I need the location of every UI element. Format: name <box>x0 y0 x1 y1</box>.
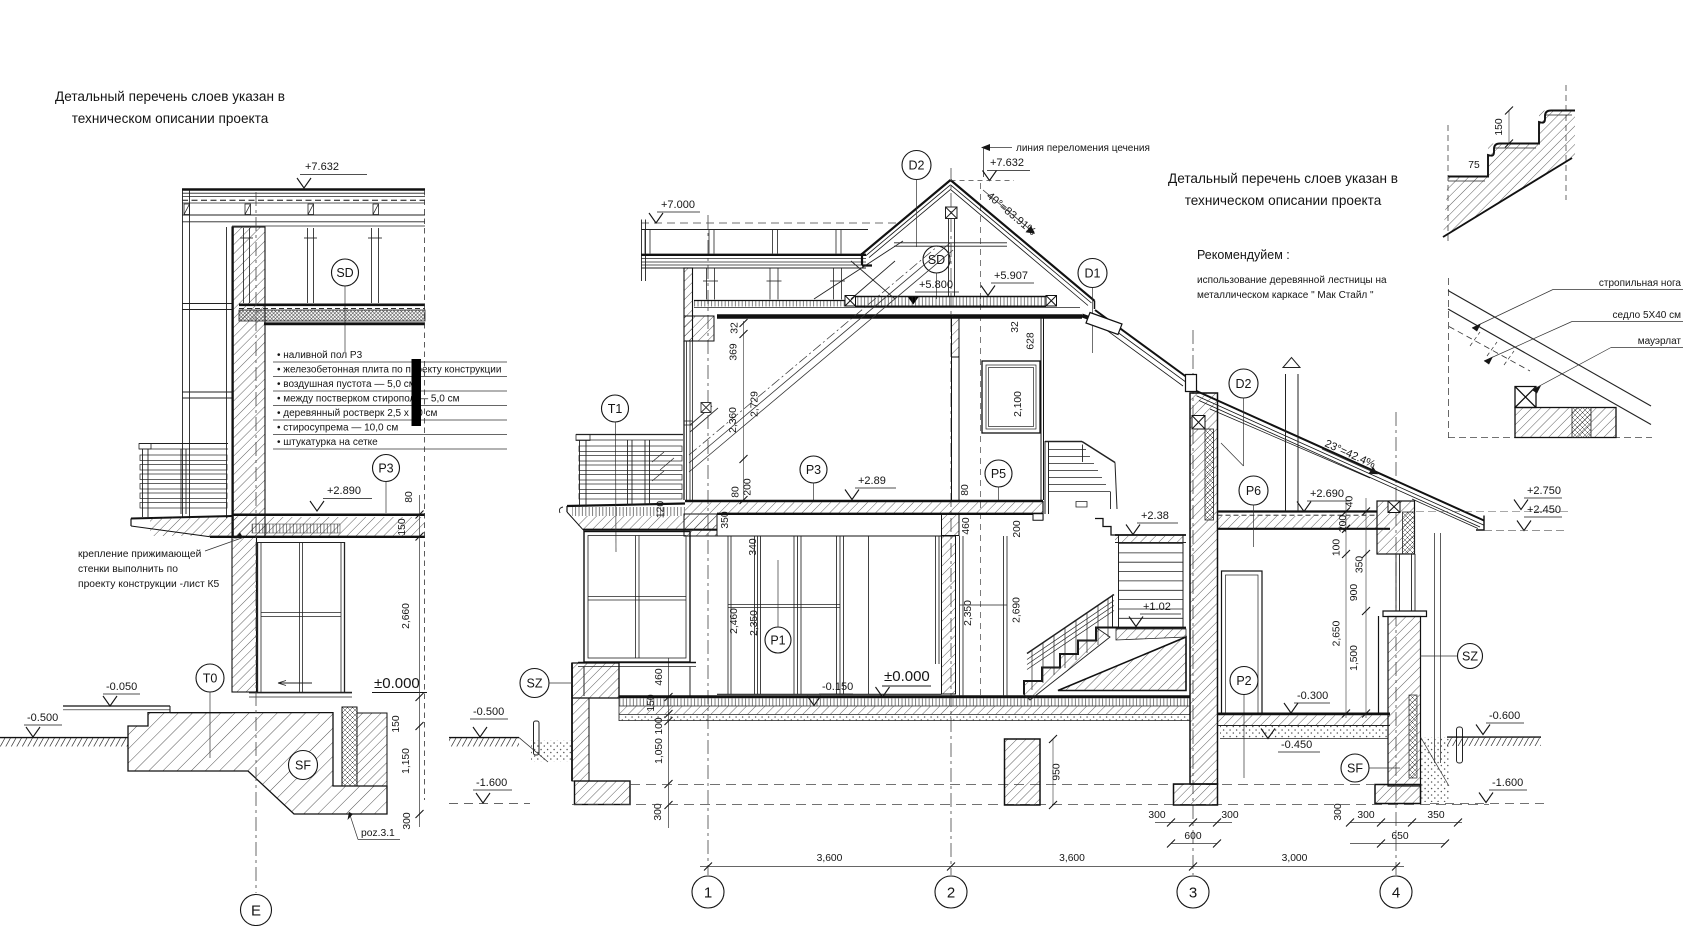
svg-text:SZ: SZ <box>1462 650 1478 664</box>
svg-text:+1.02: +1.02 <box>1143 601 1171 613</box>
svg-text:-0.500: -0.500 <box>27 712 58 724</box>
svg-text:2,650: 2,650 <box>1332 620 1343 646</box>
svg-text:±0.000: ±0.000 <box>884 668 930 685</box>
svg-text:3,600: 3,600 <box>1059 853 1085 864</box>
svg-text:300: 300 <box>1333 803 1344 820</box>
svg-text:Р6: Р6 <box>1246 484 1261 498</box>
svg-text:3: 3 <box>1189 885 1197 902</box>
svg-text:линия переломения цечения: линия переломения цечения <box>1016 143 1150 154</box>
svg-text:3,600: 3,600 <box>817 853 843 864</box>
svg-text:D2: D2 <box>909 159 925 173</box>
svg-text:150: 150 <box>1494 118 1505 135</box>
svg-text:Т0: Т0 <box>203 672 218 686</box>
svg-text:2,350: 2,350 <box>749 610 760 636</box>
svg-text:SZ: SZ <box>527 677 543 691</box>
svg-text:2,460: 2,460 <box>729 608 740 634</box>
svg-text:• железобетонная плита по прое: • железобетонная плита по проекту констр… <box>277 364 501 376</box>
svg-text:460: 460 <box>654 668 665 685</box>
svg-text:D2: D2 <box>1236 377 1252 391</box>
svg-text:Т1: Т1 <box>608 402 623 416</box>
svg-text:D1: D1 <box>1085 267 1101 281</box>
svg-text:200: 200 <box>1012 520 1023 537</box>
svg-text:• наливной пол Р3: • наливной пол Р3 <box>277 350 363 361</box>
svg-text:100: 100 <box>1332 539 1343 556</box>
svg-text:Р1: Р1 <box>770 634 785 648</box>
svg-text:Р3: Р3 <box>378 462 393 476</box>
svg-text:340: 340 <box>748 538 759 555</box>
svg-text:80: 80 <box>731 486 742 498</box>
svg-text:Р2: Р2 <box>1236 674 1251 688</box>
svg-text:-0.050: -0.050 <box>106 681 137 693</box>
svg-text:SF: SF <box>295 759 311 773</box>
svg-text:300: 300 <box>1357 810 1374 821</box>
svg-text:-0.600: -0.600 <box>1489 710 1520 722</box>
svg-text:2,660: 2,660 <box>401 603 412 629</box>
svg-text:poz.3.1: poz.3.1 <box>361 828 395 839</box>
svg-text:• стиросупрема — 10,0 см: • стиросупрема — 10,0 см <box>277 423 398 434</box>
svg-text:+7.632: +7.632 <box>305 161 339 173</box>
svg-text:+5.800: +5.800 <box>919 279 953 291</box>
svg-text:2,729: 2,729 <box>750 391 761 417</box>
svg-text:80: 80 <box>404 491 415 503</box>
svg-text:+2.890: +2.890 <box>327 485 361 497</box>
svg-text:стенки выполнить по: стенки выполнить по <box>78 564 178 575</box>
svg-text:2,690: 2,690 <box>1012 597 1023 623</box>
svg-text:2: 2 <box>947 885 955 902</box>
svg-text:120: 120 <box>656 501 667 518</box>
svg-text:32: 32 <box>730 322 741 334</box>
svg-text:• между постверком стиропол —: • между постверком стиропол — 5,0 см <box>277 394 460 405</box>
svg-text:техническом описании проекта: техническом описании проекта <box>72 111 269 126</box>
svg-text:2,350: 2,350 <box>963 600 974 626</box>
svg-text:техническом описании проекта: техническом описании проекта <box>1185 193 1382 208</box>
svg-text:Детальный перечень слоев указа: Детальный перечень слоев указан в <box>1168 171 1398 186</box>
svg-text:2,100: 2,100 <box>1013 391 1024 417</box>
svg-text:-1.600: -1.600 <box>476 777 507 789</box>
svg-text:1,500: 1,500 <box>1349 645 1360 671</box>
svg-text:75: 75 <box>1468 160 1480 171</box>
svg-text:300: 300 <box>653 803 664 820</box>
svg-text:350: 350 <box>1427 810 1444 821</box>
svg-text:600: 600 <box>1184 831 1201 842</box>
svg-text:1,150: 1,150 <box>401 748 412 774</box>
svg-text:• штукатурка на сетке: • штукатурка на сетке <box>277 437 378 448</box>
svg-text:350: 350 <box>720 511 731 528</box>
svg-text:+5.907: +5.907 <box>994 270 1028 282</box>
svg-text:-1.600: -1.600 <box>1492 777 1523 789</box>
svg-text:300: 300 <box>402 812 413 829</box>
svg-text:+2.690: +2.690 <box>1310 488 1344 500</box>
svg-text:40: 40 <box>1345 496 1356 508</box>
svg-text:+2.450: +2.450 <box>1527 504 1561 516</box>
svg-text:150: 150 <box>391 715 402 732</box>
svg-text:628: 628 <box>1026 332 1037 349</box>
svg-text:+7.632: +7.632 <box>990 157 1024 169</box>
svg-text:950: 950 <box>1052 763 1063 780</box>
svg-text:200: 200 <box>1338 515 1349 532</box>
svg-text:крепление прижимающей: крепление прижимающей <box>78 549 202 560</box>
svg-text:3,000: 3,000 <box>1282 853 1308 864</box>
svg-text:Е: Е <box>251 903 261 920</box>
svg-text:+2.38: +2.38 <box>1141 510 1169 522</box>
svg-text:-0.150: -0.150 <box>822 681 853 693</box>
svg-text:• воздушная пустота — 5,0 см: • воздушная пустота — 5,0 см <box>277 379 416 390</box>
svg-text:650: 650 <box>1391 831 1408 842</box>
svg-text:1,050: 1,050 <box>654 738 665 764</box>
svg-text:300: 300 <box>1148 810 1165 821</box>
svg-text:32: 32 <box>1010 321 1021 333</box>
svg-text:150: 150 <box>397 518 408 535</box>
svg-text:900: 900 <box>1349 584 1360 601</box>
svg-text:Р3: Р3 <box>806 463 821 477</box>
svg-text:+2.750: +2.750 <box>1527 485 1561 497</box>
svg-text:2,360: 2,360 <box>728 407 739 433</box>
svg-text:проекту конструкции -лист К5: проекту конструкции -лист К5 <box>78 579 220 590</box>
svg-text:4: 4 <box>1392 885 1400 902</box>
svg-text:Детальный перечень слоев указа: Детальный перечень слоев указан в <box>55 89 285 104</box>
svg-text:мауэрлат: мауэрлат <box>1638 336 1682 347</box>
svg-text:460: 460 <box>961 517 972 534</box>
svg-text:Рекомендуйем :: Рекомендуйем : <box>1197 248 1290 262</box>
svg-text:200: 200 <box>743 478 754 495</box>
svg-text:+7.000: +7.000 <box>661 199 695 211</box>
svg-text:-0.450: -0.450 <box>1281 739 1312 751</box>
svg-text:300: 300 <box>1221 810 1238 821</box>
svg-text:SD: SD <box>336 266 353 280</box>
svg-text:±0.000: ±0.000 <box>374 675 420 692</box>
svg-text:80: 80 <box>960 484 971 496</box>
svg-text:Р5: Р5 <box>991 467 1006 481</box>
svg-text:использование деревянной лестн: использование деревянной лестницы на <box>1197 275 1387 286</box>
svg-text:-0.500: -0.500 <box>473 706 504 718</box>
svg-text:369: 369 <box>729 343 740 360</box>
svg-text:седло 5Х40 см: седло 5Х40 см <box>1613 310 1682 321</box>
svg-text:+2.89: +2.89 <box>858 475 886 487</box>
svg-text:350: 350 <box>1355 556 1366 573</box>
svg-text:металлическом каркасе " Мак С: металлическом каркасе " Мак Стайл " <box>1197 290 1374 301</box>
svg-text:1: 1 <box>704 885 712 902</box>
svg-text:-0.300: -0.300 <box>1297 690 1328 702</box>
svg-text:SF: SF <box>1347 762 1363 776</box>
svg-text:стропильная нога: стропильная нога <box>1599 278 1682 289</box>
